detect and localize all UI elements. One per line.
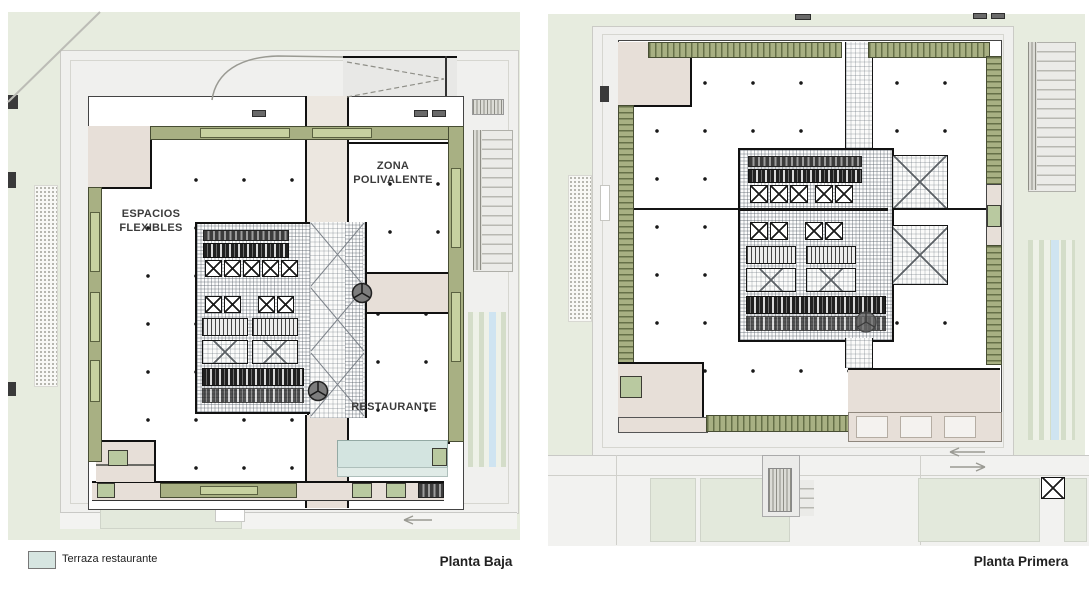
legend-swatch — [28, 551, 56, 569]
roof-marker — [795, 14, 811, 20]
roof-marker — [973, 13, 987, 19]
floor-plan-sheet: ESPACIOS FLEXIBLES ZONA POLIVALENTE REST… — [0, 0, 1089, 615]
road-arrow-right — [950, 463, 985, 471]
title-planta-primera: Planta Primera — [941, 554, 1089, 569]
plan-planta-primera — [0, 0, 1089, 615]
road-arrow-left — [950, 448, 985, 456]
title-planta-baja: Planta Baja — [396, 554, 556, 569]
linework-right — [0, 0, 1089, 615]
void-over-revolving-door — [856, 312, 876, 332]
legend: Terraza restaurante — [28, 551, 248, 571]
roof-marker — [991, 13, 1005, 19]
legend-label: Terraza restaurante — [62, 553, 157, 565]
